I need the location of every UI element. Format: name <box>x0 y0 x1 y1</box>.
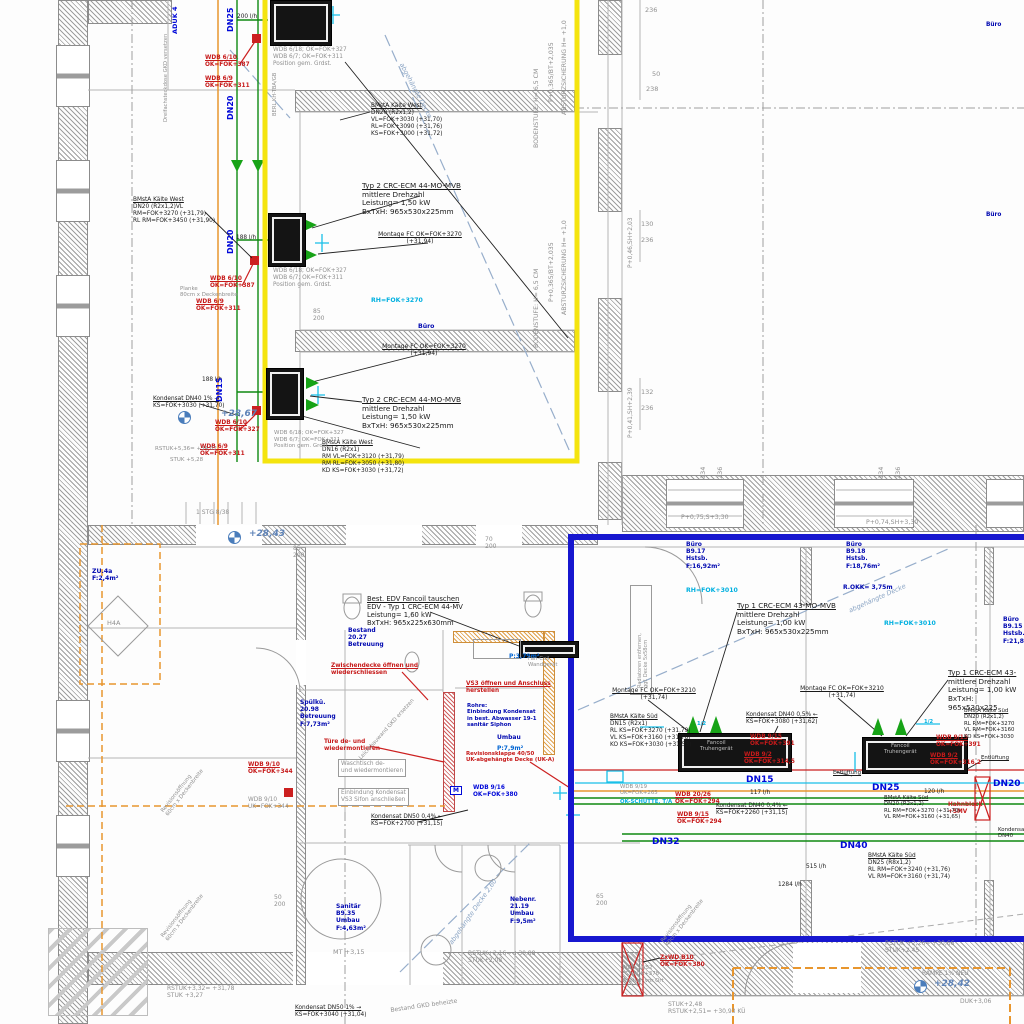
plan-label: Revisionsklappe 40/50 UK-abgehängte Deck… <box>466 751 554 764</box>
plan-label: M <box>450 786 462 795</box>
plan-label: Sanitär B9.35 Umbau F:4,63m² <box>336 903 366 932</box>
plan-label: 134 <box>700 467 708 479</box>
plan-label: Rohre: Einbindung Kondensat in best. Abw… <box>467 703 537 729</box>
plan-label: 50 200 <box>274 894 285 908</box>
plan-label: DN32 <box>652 837 680 848</box>
plan-label: BMstA Kälte West DN20 (R2x1,2)VL RM=FOK+… <box>133 197 215 225</box>
plan-label: +28,42 <box>934 979 970 990</box>
plan-label: VS3 öffnen und Anschluss herstellen <box>466 681 551 695</box>
plan-label: R.OKK= 3,75m <box>843 584 893 591</box>
plan-label: WDB 9/10 UK=FOK+344 <box>248 797 289 811</box>
plan-label: Zwischendecke öffnen und wiederschliesse… <box>331 663 418 677</box>
plan-label: 236 <box>641 405 653 413</box>
ceiling-lines <box>230 35 948 972</box>
plan-label: P+0,365/BT+2,035 <box>548 242 555 302</box>
plan-label: DN20 <box>226 230 236 254</box>
plan-label: Typ 1 CRC-ECM 43-MO-MVB mittlere Drehzah… <box>737 602 836 637</box>
plan-label: RH=FOK+3010 <box>686 587 738 594</box>
plan-label: MT +3,15 <box>333 949 365 957</box>
plan-label: BODENSTUFE: H= 6,5 CM <box>533 69 540 148</box>
plan-label: Büro B9.15 Hstsb. F:21,8m² <box>1003 616 1024 645</box>
plan-label: WDB 30/52 FC=FOK+378 Position vor Ort <box>622 965 664 984</box>
plan-label: 236 <box>717 467 725 479</box>
plan-label: 200 l/h <box>237 14 257 21</box>
plan-label: WDB 6/18; OK=FOK+327 WDB 6/7; OK=FOK+311… <box>273 47 347 68</box>
plan-label: WDB 6/9 OK=FOK+311 <box>196 299 241 313</box>
plan-label: 236 <box>645 7 657 15</box>
plan-label: RSTUK+3,32= +31,78 STUK +3,27 <box>167 985 235 999</box>
plan-label: Kondensat DN40 0,4% ← KS=FOK+2260 (+31,1… <box>716 803 788 817</box>
fan-coil-unit <box>270 0 332 46</box>
plan-label: Montage FC OK=FOK+3270 (+31,94) <box>380 343 468 357</box>
plan-label: +28,43 <box>249 529 285 540</box>
plan-label: RH=FOK+3270 <box>371 297 423 304</box>
plan-label: WDB 6/10 OK=FOK+387 <box>205 55 250 69</box>
plan-label: Kondensat DN40 0,5% ← KS=FOK+3080 (+31,6… <box>746 712 818 726</box>
plan-label: RSTUK +2,26= +30,66 STUK+2,45 <box>885 940 954 954</box>
plan-label: P+0,41,SH+2,39 <box>627 387 634 438</box>
plan-label: P+0,75,S+3,30 <box>681 514 729 521</box>
floor-plan-canvas: BMstA Kälte West DN20 (R2x1,2) VL=FOK+30… <box>0 0 1024 1024</box>
plan-label: WDB 6/18; OK=FOK+327 WDB 6/7; OK=FOK+311… <box>274 430 344 450</box>
plan-label: ZU.4a F:2,4m² <box>92 568 118 583</box>
plan-label: Entlüftung <box>833 770 861 776</box>
plan-label: Kondensat DN40 <box>998 827 1024 840</box>
plan-label: WDB 6/10 OK=FOK+327 <box>215 420 260 434</box>
plan-label: Kondensat DN40 1% → KS=FOK+3030 (+31,70) <box>153 396 224 410</box>
plan-label: 50 <box>652 71 660 79</box>
plan-label: Spülkü. 20.98 Betreuung F:7,73m² <box>300 699 336 728</box>
plan-label: 188 l/h <box>236 235 256 242</box>
plan-label: Radiatoren entfernen, ggf. Decke 5x58cm <box>637 633 649 688</box>
plan-label: Bestand 20.27 Betreuung <box>348 627 384 649</box>
plan-label: BERL KH-TBA/GB <box>272 73 278 116</box>
plan-label: Planke 80cm x Deckenbreite <box>180 286 238 299</box>
plan-label: 70 200 <box>485 536 496 550</box>
plan-label: WDB 9/15 OK=FOK+294 <box>677 812 722 826</box>
plan-label: Umbau <box>497 734 521 741</box>
plan-label: BMstA Kälte Süd DN20 (R2x1,2) RL RM=FOK+… <box>884 795 960 821</box>
plan-label: DN20 <box>993 779 1021 790</box>
plan-label: Kondensat DN50 0,4% ← KS=FOK+2700 (+31,1… <box>371 814 443 828</box>
level-marker-icon <box>228 531 241 544</box>
plan-label: WDB 9/19 UK=FOK+265 <box>620 784 658 797</box>
plan-label: 1284 l/h <box>778 882 802 889</box>
plan-label: WDB 9/2 OK=FOK+314,5 <box>744 752 795 766</box>
plan-label: Dreifachsteckdose GKD versetzen <box>163 34 169 122</box>
plan-label: 1/2 <box>924 719 933 725</box>
level-marker-icon <box>178 411 191 424</box>
plan-label: Montage FC OK=FOK+3210 (+31,74) <box>798 685 886 699</box>
plan-label: Büro <box>986 22 1001 29</box>
plan-label: DN15 <box>215 378 225 402</box>
plan-label: WDB 6/18; OK=FOK+327 WDB 6/7; OK=FOK+311… <box>273 268 347 289</box>
plan-label: Büro B9.17 Hstsb. F:16,92m² <box>686 541 720 570</box>
fan-coil-unit <box>268 213 306 267</box>
plan-label: ZxWD B10 OK=FOK+380 <box>660 955 705 969</box>
plan-label: 1/2 <box>697 721 706 727</box>
plan-label: DN40 <box>840 841 868 852</box>
plan-label: P+0,74,SH+3,30 <box>866 519 918 526</box>
plan-label: Waschtisch de- und wiedermontieren <box>338 759 406 777</box>
plan-label: RSTUK+5,36= +34,02 <box>155 446 217 453</box>
plan-label: STUK+2,48 RSTUK+2,51= +30,93 KÜ <box>668 1001 746 1015</box>
plan-label: DN25 <box>226 8 236 32</box>
plan-label: 236 <box>895 467 903 479</box>
plan-label: 134 <box>878 467 886 479</box>
plan-label: 130 <box>641 221 653 229</box>
plan-label: OK-SCHÜTTE, T/A <box>620 799 672 805</box>
plan-label: Entlüftung <box>981 755 1009 761</box>
plan-label: WDB 9/2 OK=FOK+316,2 <box>930 753 981 767</box>
plan-label: H4A <box>107 620 120 628</box>
plan-label: P+0,365/BT+2,035 <box>548 42 555 102</box>
plan-label: RSTUK+2,16= +30,88 STUK+2,08 <box>468 950 536 964</box>
plan-label: WDB 9/10 OK=FOK+344 <box>248 762 293 776</box>
plan-label: RAMPE 1% NEU <box>922 970 969 977</box>
plan-label: Typ 1 CRC-ECM 43- mittlere Drehzahl Leis… <box>948 669 1024 712</box>
plan-label: P+0,46,SH+2,03 <box>627 217 634 268</box>
plan-label: Büro <box>986 212 1001 219</box>
plan-label: BMstA Kälte Süd DN15 (R2x1) RL KS=FOK+32… <box>610 714 691 749</box>
plan-label: Nebenr. 21.19 Umbau F:9,5m² <box>510 896 536 925</box>
plan-label: 85 200 <box>293 545 304 559</box>
plan-label: Einbindung Kondensat VS3 Sifon anschließ… <box>338 788 409 806</box>
plan-label: BMstA Kälte Süd DN20 (R2x1,2) RL RM=FOK+… <box>964 708 1015 740</box>
plan-label: Fan-Coil Wandgerät <box>528 656 558 669</box>
plan-label: Büro <box>418 323 434 330</box>
plan-label: 515 l/h <box>806 864 826 871</box>
plan-label: BODENSTUFE: H= 6,5 CM <box>533 269 540 348</box>
plan-label: 65 200 <box>596 893 607 907</box>
plan-label: DUK+3,06 <box>960 998 991 1005</box>
plan-label: Fancoil Truhengerät <box>700 740 733 753</box>
plan-label: ABSTURZSICHERUNG H= +1,0 <box>561 20 568 115</box>
plan-label: RH=FOK+3010 <box>884 620 936 627</box>
valve-markers <box>250 34 929 797</box>
fan-coil-unit <box>266 368 304 420</box>
structure-lines <box>88 0 1024 996</box>
plan-label: 117 l/h <box>750 790 770 797</box>
plan-label: STUK +5,28 <box>170 457 203 464</box>
plan-label: Typ 2 CRC-ECM 44-MO-MVB mittlere Drehzah… <box>362 396 461 431</box>
plan-label: 238 <box>646 86 658 94</box>
plan-label: WDB 6/9 OK=FOK+311 <box>205 76 250 90</box>
plan-label: 1 STG 8/38 <box>196 509 229 516</box>
plan-label: Kondensat DN50 1% → KS=FOK+3040 (+31,04) <box>295 1005 366 1019</box>
plan-label: WDB 20/26 OK=FOK+294 <box>675 792 720 806</box>
plan-label: Montage FC OK=FOK+3270 (+31,94) <box>376 231 464 245</box>
plan-label: WDB 9/16 OK=FOK+380 <box>473 785 518 799</box>
plan-label: 132 <box>641 389 653 397</box>
plan-label: WDB 9/15 OK=FOK+391 <box>750 734 795 748</box>
plan-label: DN20 <box>226 96 236 120</box>
plan-label: Fancoil Truhengerät <box>884 743 917 756</box>
plan-label: DN25 <box>872 783 900 794</box>
plan-label: +28,67 <box>221 409 257 420</box>
plan-label: DN15 <box>746 775 774 786</box>
plan-label: ADUK 4 <box>172 6 180 34</box>
plan-label: 236 <box>641 237 653 245</box>
plan-label: Best. EDV Fancoil tauschen EDV - Typ 1 C… <box>367 595 463 628</box>
plan-label: Montage FC OK=FOK+3210 (+31,74) <box>610 687 698 701</box>
plan-label: ABSTURZSICHERUNG H= +1,0 <box>561 220 568 315</box>
level-marker-icon <box>914 980 927 993</box>
plan-label: BMstA Kälte West DN20 (R2x1,2) VL=FOK+30… <box>371 103 442 138</box>
annotation-leaders <box>200 62 983 962</box>
plan-label: Büro B9.18 Hstsb. F:18,76m² <box>846 541 880 570</box>
plan-label: 85 200 <box>313 308 324 322</box>
plan-label: BMstA Kälte Süd DN25 (R8x1,2) RL RM=FOK+… <box>868 853 950 881</box>
plan-label: Typ 2 CRC-ECM 44-MO-MVB mittlere Drehzah… <box>362 182 461 217</box>
